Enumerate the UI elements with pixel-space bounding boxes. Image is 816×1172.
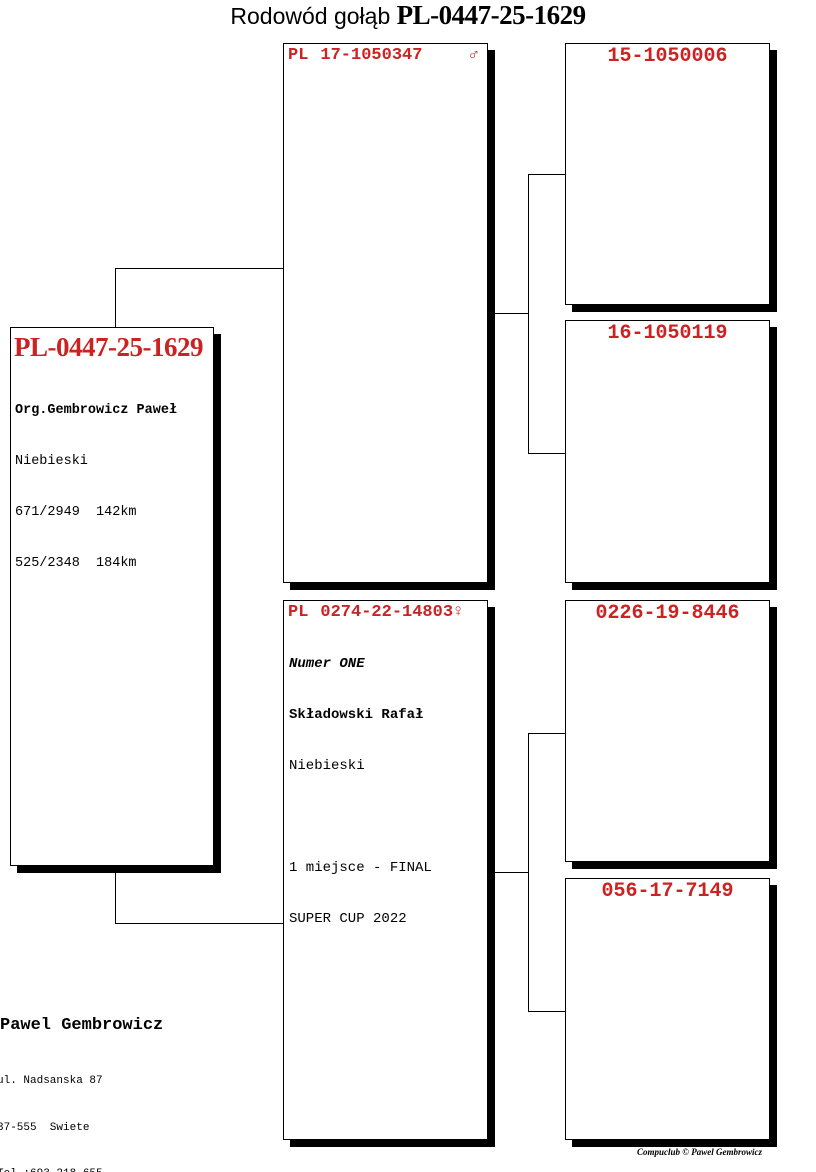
father-ring-number: 17-1050347 [320, 46, 422, 65]
grandparent-box-3: 0226-19-8446 [565, 600, 770, 862]
father-country-code: PL [288, 46, 308, 65]
mother-pigeon-name: Numer ONE [289, 656, 487, 673]
subject-details: Org.Gembrowicz Paweł Niebieski 671/2949 … [11, 368, 213, 606]
subject-color: Niebieski [15, 453, 213, 470]
mother-header: PL 0274-22-14803 ♀ [284, 601, 487, 622]
mother-owner: Składowski Rafał [289, 707, 487, 724]
male-symbol: ♂ [469, 46, 479, 65]
connector-left-top-horizontal [115, 268, 283, 269]
mother-achievement-2: SUPER CUP 2022 [289, 911, 487, 928]
breeder-phone: Tel.:693-218-655 [0, 1167, 163, 1172]
connector-gp1-stub [528, 174, 565, 175]
breeder-contact-block: Pawel Gembrowicz ul. Nadsanska 87 37-555… [0, 1016, 163, 1172]
connector-gp4-stub [528, 1011, 565, 1012]
mother-details: Numer ONE Składowski Rafał Niebieski 1 m… [284, 622, 487, 962]
connector-father-vertical [528, 174, 529, 454]
blank-line [289, 809, 487, 826]
grandparent-4-ring-number: 056-17-7149 [566, 879, 769, 903]
connector-left-top-vertical [115, 268, 116, 327]
subject-box: PL-0447-25-1629 Org.Gembrowicz Paweł Nie… [10, 327, 214, 866]
subject-ring-number: PL-0447-25-1629 [14, 332, 213, 363]
grandparent-box-1: 15-1050006 [565, 43, 770, 305]
title-ring-number: PL-0447-25-1629 [397, 0, 586, 30]
mother-color: Niebieski [289, 758, 487, 775]
connector-gp3-stub [528, 733, 565, 734]
subject-result-2: 525/2348 184km [15, 555, 213, 572]
connector-left-bottom-horizontal [115, 923, 283, 924]
software-watermark: Compuclub © Pawel Gembrowicz [637, 1147, 777, 1157]
subject-result-1: 671/2949 142km [15, 504, 213, 521]
breeder-city: 37-555 Swiete [0, 1121, 163, 1137]
mother-country-code: PL [288, 603, 308, 622]
connector-mother-stub [488, 872, 528, 873]
female-symbol: ♀ [453, 603, 463, 622]
grandparent-box-4: 056-17-7149 [565, 878, 770, 1140]
subject-organization: Org.Gembrowicz Paweł [15, 402, 213, 419]
breeder-street: ul. Nadsanska 87 [0, 1074, 163, 1090]
title-prefix: Rodowód gołąb [230, 3, 396, 29]
connector-gp2-stub [528, 453, 565, 454]
pedigree-page: Rodowód gołąb PL-0447-25-1629 PL-0447-25… [0, 0, 816, 1172]
grandparent-1-ring-number: 15-1050006 [566, 44, 769, 68]
breeder-name: Pawel Gembrowicz [0, 1016, 163, 1035]
connector-mother-vertical [528, 733, 529, 1012]
mother-achievement-1: 1 miejsce - FINAL [289, 860, 487, 877]
grandparent-3-ring-number: 0226-19-8446 [566, 601, 769, 625]
father-box: PL 17-1050347 ♂ [283, 43, 488, 583]
page-title: Rodowód gołąb PL-0447-25-1629 [0, 0, 816, 31]
mother-box: PL 0274-22-14803 ♀ Numer ONE Składowski … [283, 600, 488, 1140]
connector-father-stub [488, 313, 528, 314]
grandparent-2-ring-number: 16-1050119 [566, 321, 769, 345]
father-header: PL 17-1050347 ♂ [284, 44, 487, 65]
grandparent-box-2: 16-1050119 [565, 320, 770, 583]
mother-ring-number: 0274-22-14803 [320, 603, 453, 622]
breeder-address: ul. Nadsanska 87 37-555 Swiete Tel.:693-… [0, 1043, 163, 1172]
connector-left-bottom-vertical [115, 866, 116, 923]
